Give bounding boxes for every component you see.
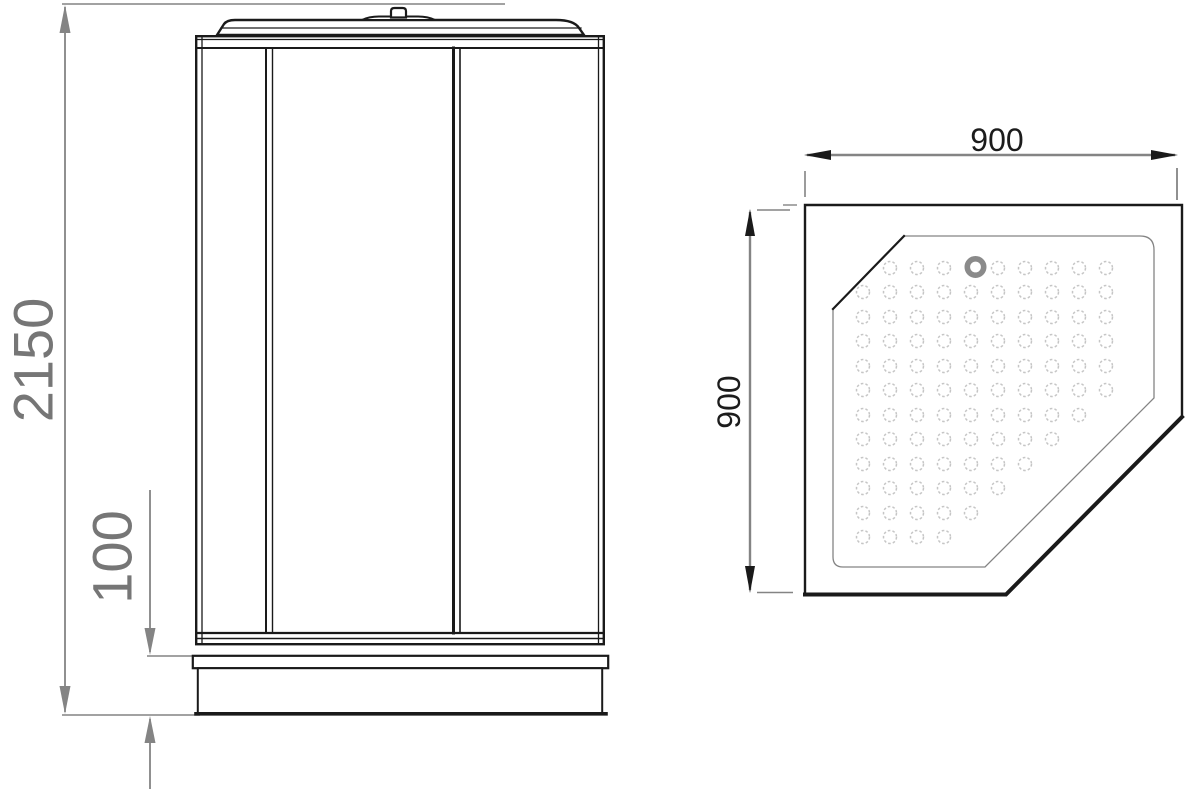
technical-drawing-page: 2150 100 [0, 0, 1195, 800]
dim-width-arrow-left-icon [804, 150, 831, 160]
dim-label-tray-depth: 900 [711, 375, 747, 428]
dim-tray-height-arrow-down-icon [145, 628, 156, 655]
dim-depth-arrow-up-icon [745, 209, 755, 236]
roof-vent-knob [391, 8, 406, 18]
dim-height-arrow-up-icon [60, 5, 71, 33]
front-view: 2150 100 [2, 4, 609, 789]
tray-lip [193, 656, 608, 668]
dim-depth-arrow-down-icon [745, 566, 755, 593]
tray-skirt [198, 668, 602, 713]
plan-view: 900 900 [711, 122, 1182, 595]
cabin-frame [196, 36, 604, 644]
dim-label-tray-height: 100 [81, 510, 144, 603]
dim-label-tray-width: 900 [970, 122, 1023, 158]
dim-tray-height-arrow-up-icon [145, 716, 156, 743]
drain-ring [967, 259, 983, 275]
dim-height-arrow-down-icon [60, 686, 71, 714]
dim-label-height: 2150 [2, 298, 65, 423]
dim-width-arrow-right-icon [1151, 150, 1178, 160]
drawing-svg: 2150 100 [0, 0, 1195, 800]
